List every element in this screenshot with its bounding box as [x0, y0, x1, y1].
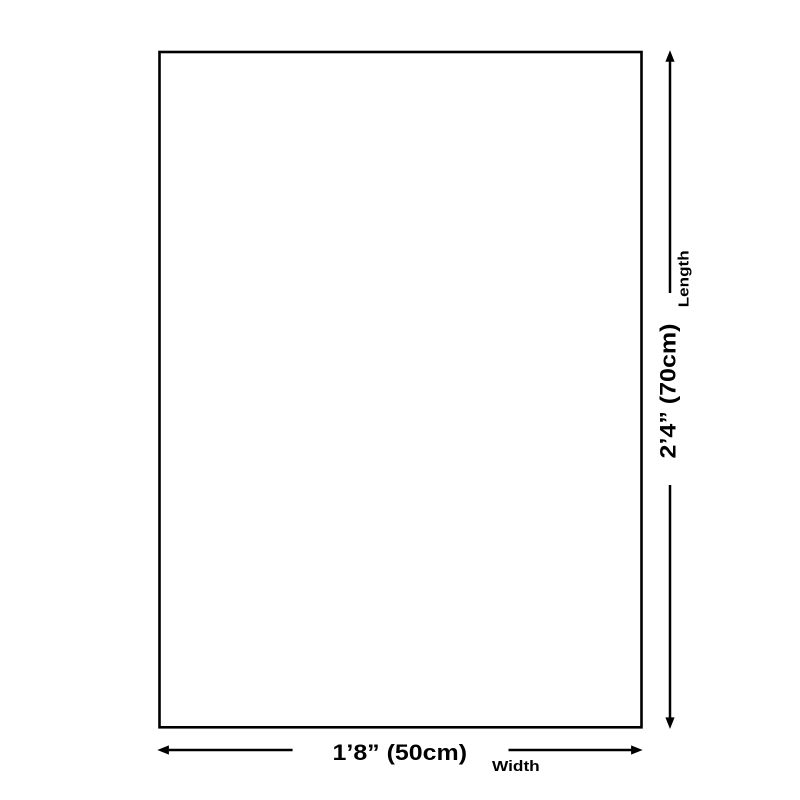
- svg-text:1’8” (50cm): 1’8” (50cm): [333, 740, 467, 764]
- svg-text:2’4” (70cm): 2’4” (70cm): [656, 324, 680, 459]
- svg-text:Width: Width: [492, 758, 540, 775]
- svg-text:Length: Length: [675, 250, 692, 307]
